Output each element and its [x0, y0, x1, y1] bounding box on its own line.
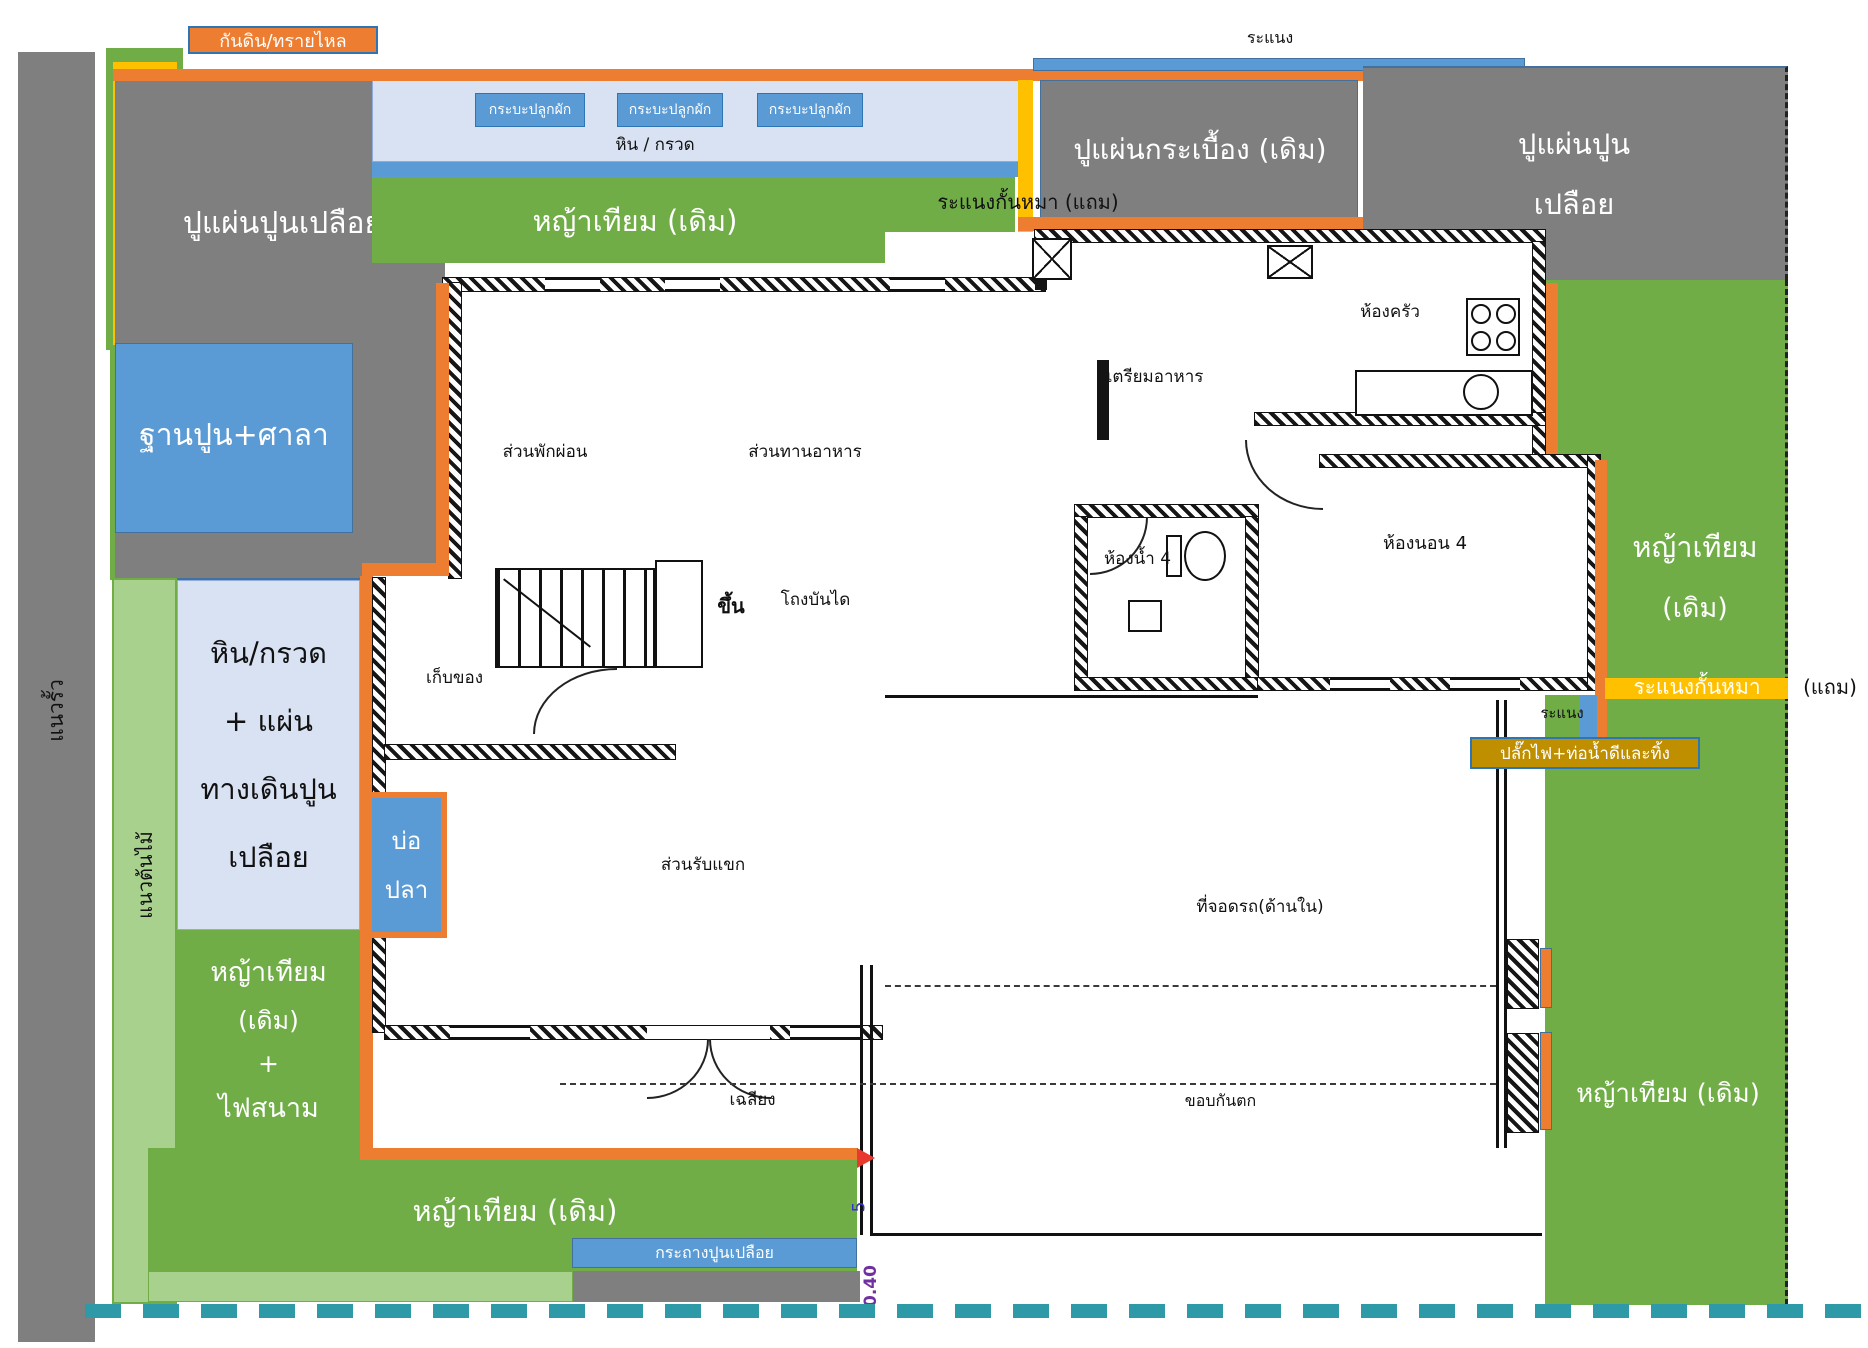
lattice-top-label: ระแนง	[1215, 26, 1325, 50]
red-arrow-icon	[857, 1148, 875, 1168]
stove-icon	[1466, 298, 1520, 356]
cement-base-text: ฐานปูน+ศาลา	[139, 412, 329, 459]
wall-bath-east	[1246, 517, 1258, 690]
window-top-3	[890, 278, 945, 291]
dog-lattice-top-label: ระแนงกั้นหมา (แถม)	[903, 186, 1153, 218]
room-bath-label: ห้องน้ำ 4	[1095, 545, 1180, 571]
planter-box-2-text: กระบะปลูกผัก	[629, 99, 712, 121]
gray-bottom-strip	[573, 1271, 860, 1302]
dog-lattice-east-label: ระแนงกั้นหมา	[1598, 670, 1796, 704]
tile-paving-label: ปูแผ่นกระเบื้อง (เดิม)	[1060, 128, 1340, 172]
dog-lattice-top-text: ระแนงกั้นหมา (แถม)	[937, 186, 1118, 218]
window-top-2	[665, 278, 720, 291]
room-bath-text: ห้องน้ำ 4	[1104, 545, 1171, 572]
window-south-2	[790, 1026, 860, 1039]
carport-column-2	[1508, 1034, 1538, 1132]
property-line-teal	[85, 1304, 1868, 1318]
site-plan-canvas: แนวรั้ว สวนโมเดิร์น (แถม) ปูแผ่นปูนเปลือ…	[0, 0, 1868, 1348]
walkway-zone: หิน/กรวด + แผ่น ทางเดินปูน เปลือย	[177, 580, 360, 930]
walkway-text-4: เปลือย	[228, 834, 309, 880]
carport-south-line	[870, 1233, 1542, 1236]
orange-wall-west-upper	[436, 283, 449, 568]
orange-porch-south	[360, 1148, 858, 1160]
lattice-top-text: ระแนง	[1247, 26, 1293, 51]
planter-box-3: กระบะปลูกผัก	[757, 93, 863, 127]
dim-5-text: 5	[849, 1202, 869, 1213]
grass-east-column	[1545, 280, 1788, 1305]
grass-se-text: หญ้าเทียม (เดิม)	[1576, 1073, 1760, 1114]
cement-base-label: ฐานปูน+ศาลา	[120, 410, 348, 460]
lattice-small-label: ระแนง	[1530, 702, 1594, 724]
grass-se-label: หญ้าเทียม (เดิม)	[1552, 1072, 1784, 1114]
room-storage-label: เก็บของ	[412, 664, 497, 690]
fish-pond-text-1: บ่อ	[392, 821, 422, 860]
grass-east-text-1: หญ้าเทียม	[1632, 524, 1757, 570]
fence-line-text: แนวรั้ว	[40, 679, 73, 742]
planter-strip-zone: กระถางปูนเปลือย	[572, 1238, 857, 1268]
grass-lights-zone: หญ้าเทียม (เดิม) + ไฟสนาม	[177, 930, 360, 1148]
grass-top-label: หญ้าเทียม (เดิม)	[505, 198, 765, 244]
orange-strip-right	[1018, 217, 1365, 231]
grass-east-text-2: (เดิม)	[1662, 586, 1728, 629]
room-guest-text: ส่วนรับแขก	[661, 851, 745, 878]
column-icon	[1032, 238, 1072, 280]
planter-box-1-text: กระบะปลูกผัก	[489, 99, 572, 121]
carport-dash-line-2	[560, 1083, 1496, 1085]
curb-label: ขอบกันตก	[1148, 1088, 1293, 1114]
walkway-text-3: ทางเดินปูน	[200, 766, 336, 812]
stone-gravel-text: หิน / กรวด	[615, 131, 694, 158]
tree-line-label: แนวต้นไม้	[112, 780, 177, 970]
room-bed-text: ห้องนอน 4	[1383, 528, 1467, 557]
room-carport-text: ที่จอดรถ(ด้านใน)	[1196, 893, 1323, 920]
grass-lights-text-4: ไฟสนาม	[218, 1086, 319, 1129]
plug-pipe-text: ปลั๊กไฟ+ท่อน้ำดีและทิ้ง	[1500, 740, 1670, 767]
burner-icon	[1496, 304, 1516, 324]
plug-pipe-box: ปลั๊กไฟ+ท่อน้ำดีและทิ้ง	[1470, 737, 1700, 769]
wall-top-right	[1035, 230, 1545, 242]
window-south-1	[450, 1026, 530, 1039]
room-dining-text: ส่วนทานอาหาร	[748, 438, 862, 465]
carport-dash-line-1	[885, 985, 1496, 987]
room-storage-text: เก็บของ	[426, 664, 483, 691]
grass-bottom-label: หญ้าเทียม (เดิม)	[335, 1188, 695, 1234]
bare-concrete-ne-text-1: ปูแผ่นปูน	[1518, 121, 1630, 167]
window-bed-1	[1330, 678, 1390, 690]
staircase	[495, 568, 655, 668]
dog-lattice-east-text: ระแนงกั้นหมา	[1633, 671, 1760, 704]
burner-icon	[1471, 331, 1491, 351]
carport-column-1	[1508, 940, 1538, 1008]
counter-sink-icon	[1463, 374, 1499, 410]
wall-bed-south	[1258, 678, 1588, 690]
blue-strip-top	[372, 162, 1020, 177]
room-relax-label: ส่วนพักผ่อน	[480, 437, 610, 465]
window-top-1	[545, 278, 600, 291]
wall-bath-south	[1075, 678, 1258, 690]
tree-line-text: แนวต้นไม้	[129, 831, 161, 919]
dim-040-text: 0.40	[861, 1265, 881, 1307]
room-kitchen-text: ห้องครัว	[1360, 298, 1420, 325]
door-gap-south	[647, 1026, 770, 1039]
room-dining-label: ส่วนทานอาหาร	[735, 437, 875, 465]
orange-wall-jog	[362, 563, 449, 576]
porch-area	[373, 1040, 862, 1152]
burner-icon	[1496, 331, 1516, 351]
sink-unit-icon	[1267, 245, 1313, 279]
planter-box-1: กระบะปลูกผัก	[475, 93, 585, 127]
wall-bed-north	[1320, 455, 1588, 467]
curb-text: ขอบกันตก	[1185, 1089, 1256, 1114]
lattice-small-text: ระแนง	[1540, 701, 1583, 725]
lightgreen-bottom-band	[148, 1271, 573, 1302]
fence-line-label: แนวรั้ว	[18, 620, 95, 800]
orange-column-pad-2	[1540, 1032, 1552, 1130]
window-bed-2	[1450, 678, 1520, 690]
wall-bath-west	[1075, 517, 1087, 690]
hall-south-line	[885, 695, 1258, 698]
dim-5-label: 5	[846, 1194, 872, 1220]
stone-gravel-label: หิน / กรวด	[585, 132, 725, 156]
grass-lights-text-2: (เดิม)	[238, 1001, 299, 1041]
orange-wall-kitchen-east	[1546, 283, 1558, 463]
dog-lattice-east-note-text: (แถม)	[1803, 671, 1857, 703]
counter-outline	[1355, 370, 1533, 416]
wall-storage-south	[385, 745, 675, 759]
room-relax-text: ส่วนพักผ่อน	[503, 438, 588, 465]
room-kitchen-label: ห้องครัว	[1345, 298, 1435, 324]
house-area-kitchen	[885, 232, 1545, 465]
room-stair-hall-text: โถงบันได	[781, 586, 851, 613]
room-prep-text: เตรียมอาหาร	[1107, 363, 1204, 390]
walkway-text-1: หิน/กรวด	[210, 630, 327, 676]
fish-pond-text-2: ปลา	[385, 870, 428, 909]
grass-bottom-text: หญ้าเทียม (เดิม)	[413, 1188, 618, 1234]
tile-paving-text: ปูแผ่นกระเบื้อง (เดิม)	[1073, 128, 1326, 172]
toilet-bowl-icon	[1184, 531, 1226, 581]
stair-up-text: ขึ้น	[717, 590, 744, 622]
planter-strip-text: กระถางปูนเปลือย	[655, 1241, 774, 1266]
soil-sand-tag: กันดิน/ทรายไหล	[188, 26, 378, 54]
carport-area	[862, 695, 1542, 1235]
grass-top-text: หญ้าเทียม (เดิม)	[533, 198, 738, 244]
planter-box-2: กระบะปลูกผัก	[617, 93, 723, 127]
fish-pond: บ่อ ปลา	[366, 792, 447, 938]
stair-landing	[655, 560, 703, 668]
dog-lattice-east-note: (แถม)	[1795, 672, 1865, 702]
soil-sand-text: กันดิน/ทรายไหล	[219, 26, 346, 55]
grass-lights-text-1: หญ้าเทียม	[210, 950, 327, 993]
orange-column-pad-1	[1540, 948, 1552, 1008]
wall-west-upper	[449, 283, 461, 578]
basin-icon	[1128, 600, 1162, 632]
room-bed-label: ห้องนอน 4	[1370, 528, 1480, 556]
bare-concrete-nw-text: ปูแผ่นปูนเปลือย	[183, 200, 382, 247]
grass-east-label-1: หญ้าเทียม	[1600, 526, 1790, 568]
stair-up-label: ขึ้น	[706, 593, 756, 619]
grass-east-label-2: (เดิม)	[1600, 586, 1790, 628]
room-porch-text: เฉลียง	[729, 1086, 775, 1113]
wall-bath-north	[1075, 505, 1258, 517]
wall-kitchen-east	[1533, 242, 1545, 465]
room-guest-label: ส่วนรับแขก	[648, 850, 758, 878]
room-carport-label: ที่จอดรถ(ด้านใน)	[1175, 892, 1345, 920]
walkway-text-2: + แผ่น	[224, 698, 313, 744]
room-prep-label: เตรียมอาหาร	[1100, 362, 1210, 390]
planter-box-3-text: กระบะปลูกผัก	[769, 99, 852, 121]
wall-top-left	[443, 278, 1045, 291]
grass-lights-text-3: +	[258, 1049, 279, 1078]
room-porch-label: เฉลียง	[720, 1086, 785, 1112]
bare-concrete-ne-text-2: เปลือย	[1534, 181, 1615, 227]
burner-icon	[1471, 304, 1491, 324]
room-stair-hall-label: โถงบันได	[768, 586, 863, 612]
